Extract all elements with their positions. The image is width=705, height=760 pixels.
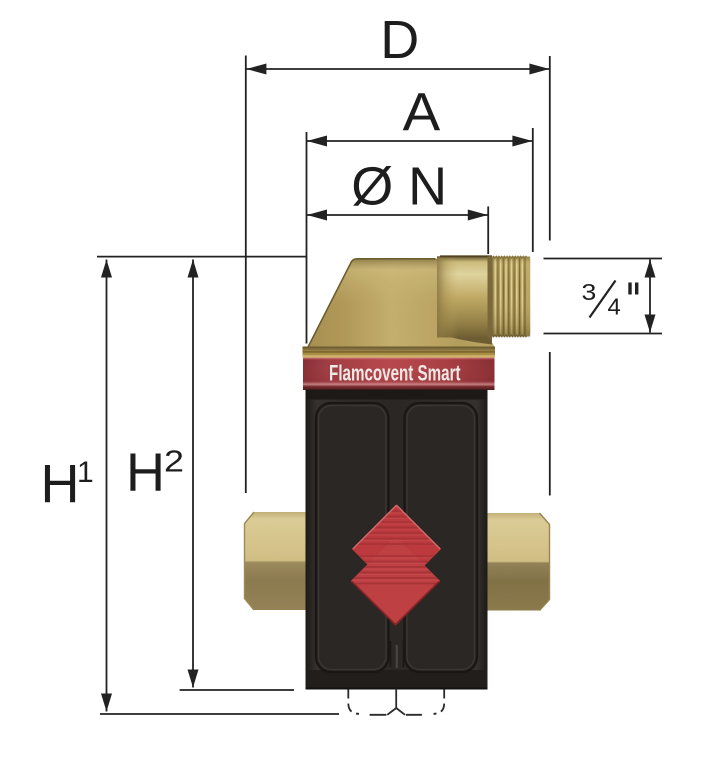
- svg-text:3: 3: [582, 279, 597, 305]
- svg-text:H: H: [126, 442, 165, 502]
- svg-text:4: 4: [608, 294, 621, 320]
- svg-text:Ø N: Ø N: [351, 157, 447, 217]
- svg-text:1: 1: [77, 456, 94, 489]
- svg-text:H: H: [41, 454, 80, 514]
- svg-text:A: A: [403, 82, 441, 142]
- svg-text:D: D: [380, 10, 419, 70]
- svg-text:Flamcovent Smart: Flamcovent Smart: [329, 361, 461, 386]
- svg-text:2: 2: [164, 444, 184, 479]
